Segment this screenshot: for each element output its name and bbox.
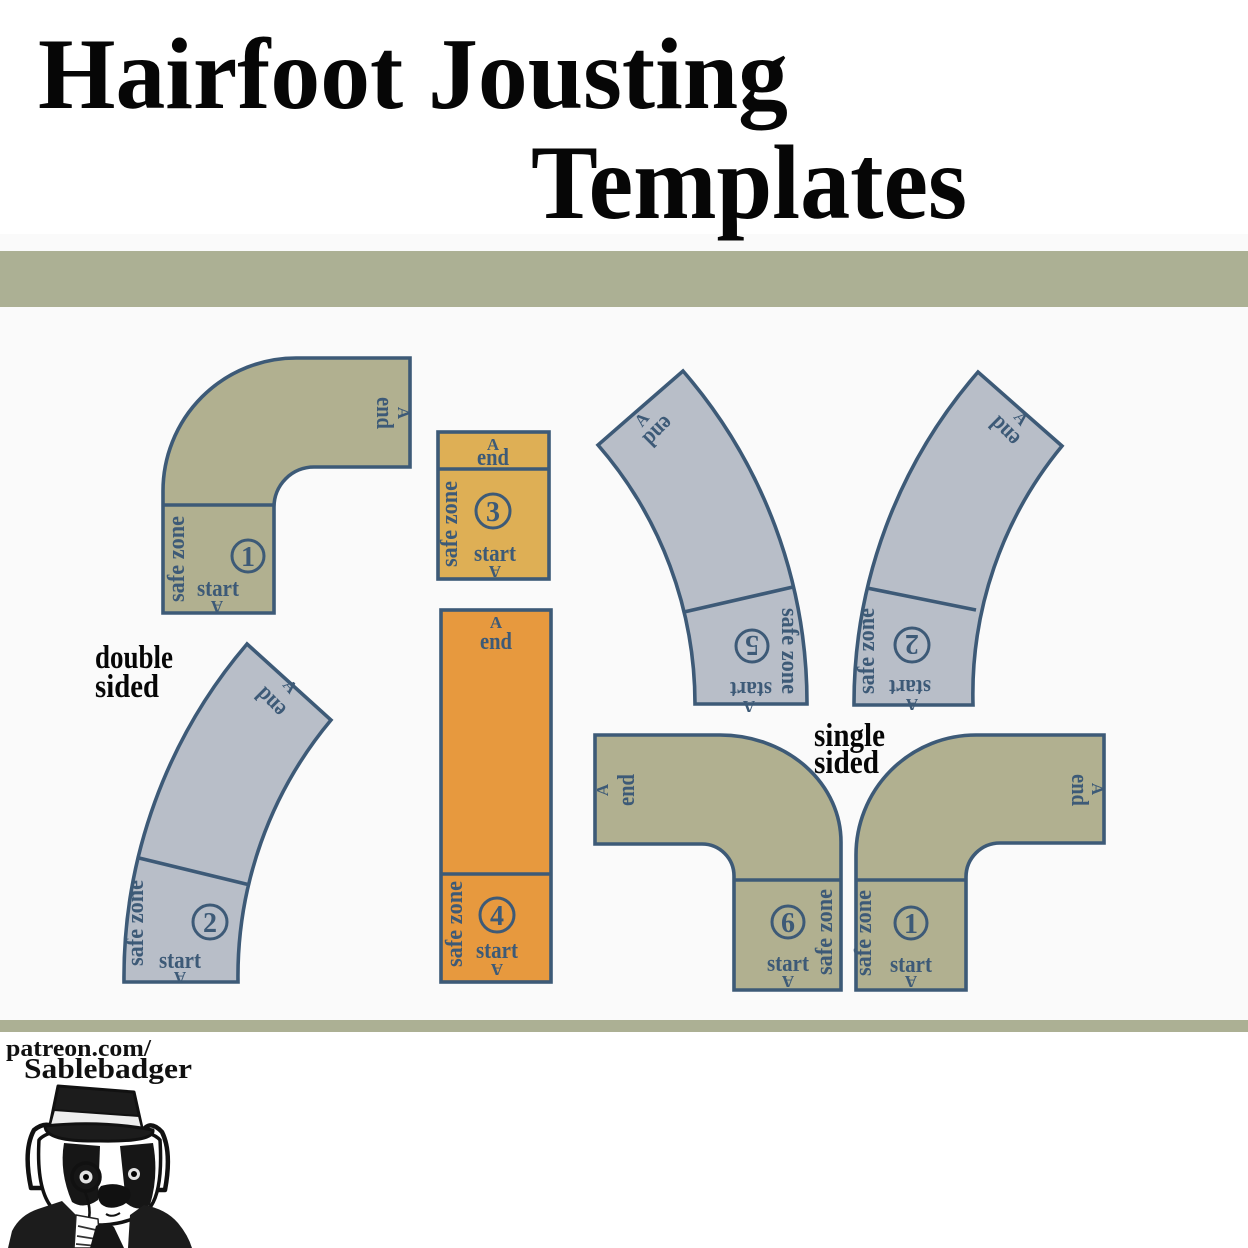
- svg-text:6: 6: [781, 908, 795, 939]
- svg-text:2: 2: [905, 628, 919, 659]
- svg-text:A: A: [781, 972, 794, 991]
- svg-text:end: end: [477, 445, 510, 471]
- svg-text:A: A: [488, 562, 501, 581]
- svg-text:safe zone: safe zone: [851, 890, 877, 976]
- svg-text:3: 3: [486, 497, 500, 528]
- svg-text:A: A: [1088, 783, 1107, 796]
- svg-text:safe zone: safe zone: [812, 889, 838, 975]
- svg-text:Templates: Templates: [531, 124, 967, 241]
- svg-text:A: A: [490, 960, 503, 979]
- svg-text:safe zone: safe zone: [854, 608, 880, 694]
- svg-text:safe zone: safe zone: [442, 881, 468, 967]
- svg-text:safe zone: safe zone: [123, 880, 149, 966]
- svg-text:sided: sided: [95, 669, 159, 705]
- svg-text:end: end: [371, 397, 397, 430]
- svg-text:end: end: [614, 773, 640, 806]
- svg-text:4: 4: [490, 901, 504, 932]
- svg-text:safe zone: safe zone: [164, 516, 190, 602]
- svg-text:Hairfoot Jousting: Hairfoot Jousting: [38, 18, 788, 131]
- svg-text:1: 1: [904, 909, 918, 940]
- svg-text:A: A: [742, 697, 755, 716]
- svg-text:sided: sided: [814, 745, 879, 781]
- svg-text:A: A: [593, 783, 612, 796]
- svg-text:2: 2: [203, 908, 217, 939]
- svg-text:A: A: [394, 407, 413, 420]
- svg-text:1: 1: [241, 542, 255, 573]
- svg-text:A: A: [210, 597, 223, 616]
- svg-text:Sablebadger: Sablebadger: [24, 1054, 192, 1085]
- svg-text:A: A: [905, 695, 918, 714]
- svg-text:A: A: [173, 968, 186, 987]
- svg-text:end: end: [480, 629, 513, 655]
- svg-text:safe zone: safe zone: [437, 481, 463, 567]
- svg-text:safe zone: safe zone: [776, 608, 802, 694]
- svg-text:A: A: [904, 972, 917, 991]
- svg-text:5: 5: [745, 629, 759, 660]
